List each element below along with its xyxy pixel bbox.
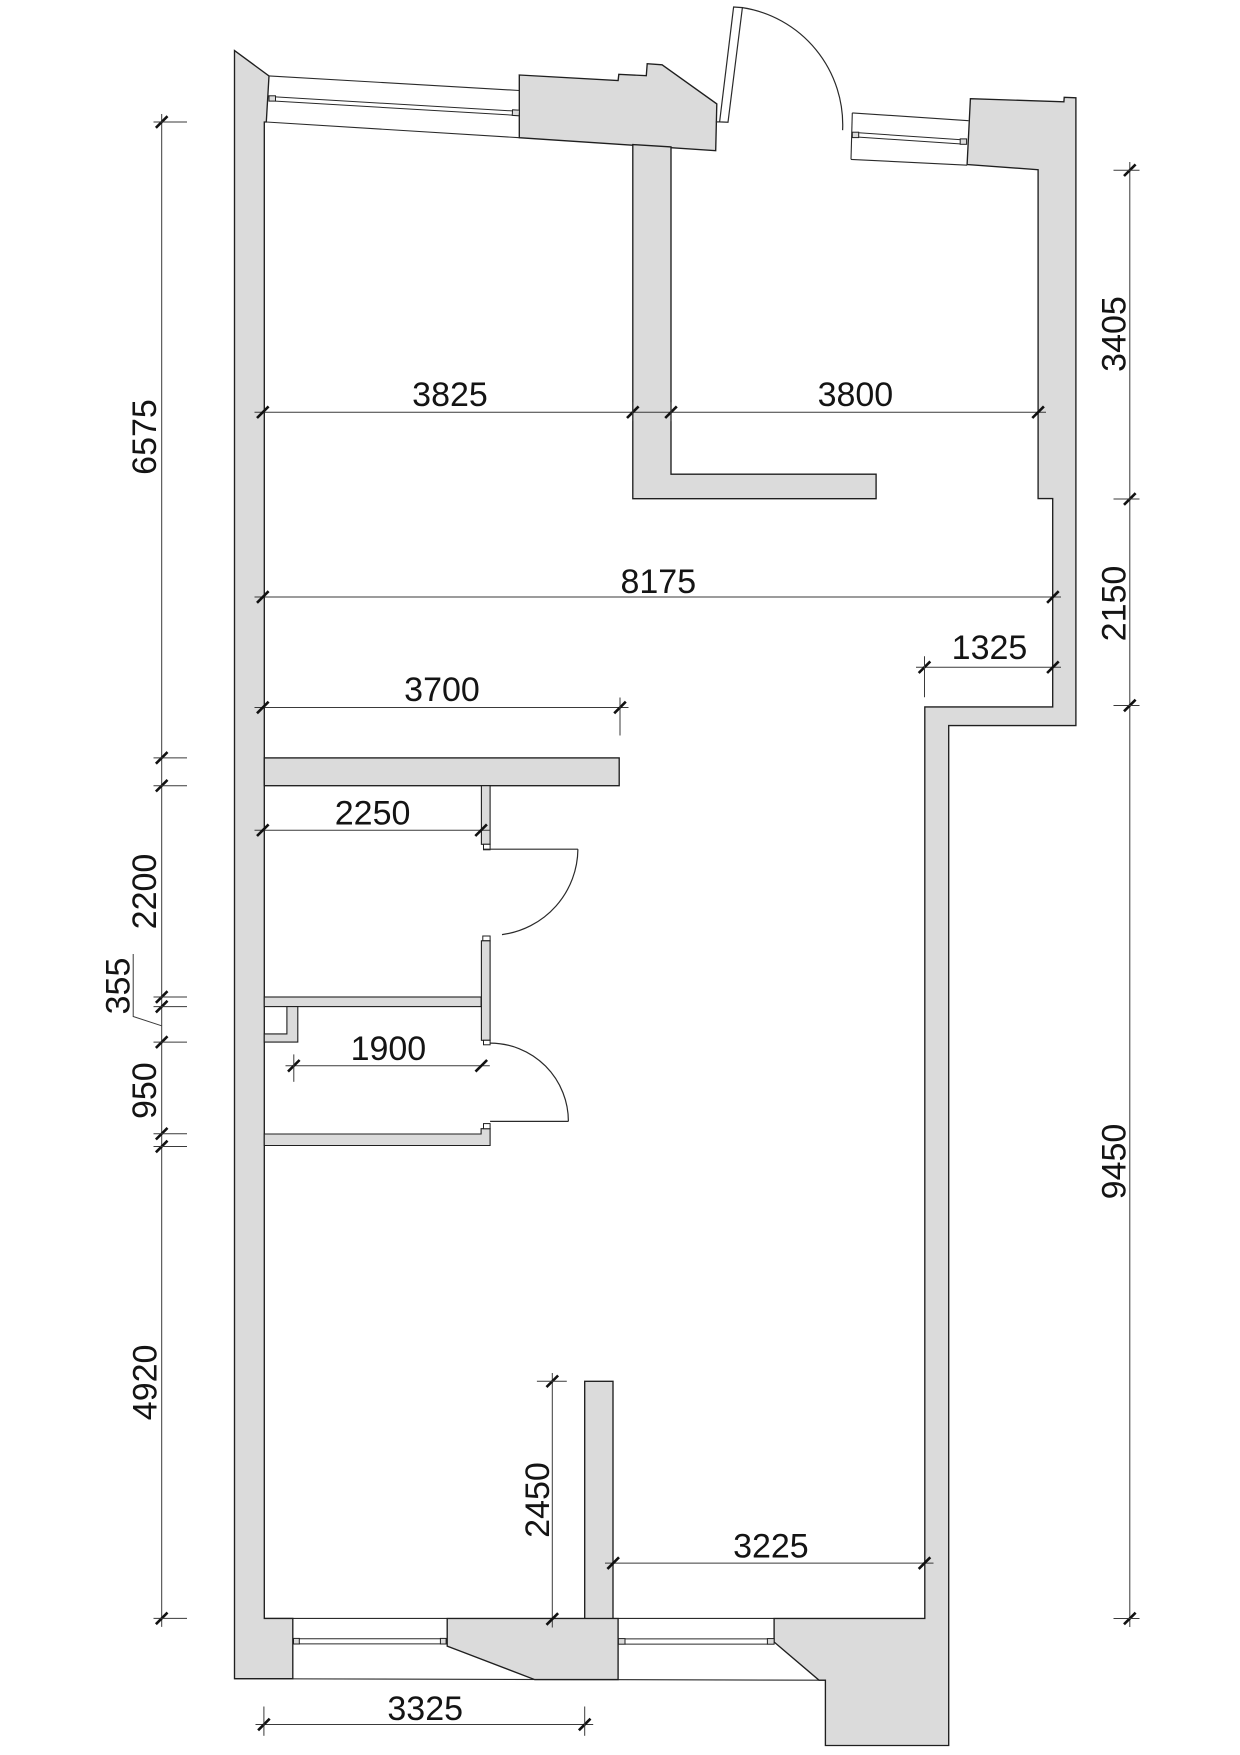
svg-text:3405: 3405 (1096, 296, 1134, 372)
svg-text:4920: 4920 (127, 1345, 165, 1421)
svg-text:3700: 3700 (404, 671, 480, 709)
svg-text:1325: 1325 (952, 629, 1028, 667)
svg-text:2150: 2150 (1096, 566, 1134, 642)
svg-text:2200: 2200 (126, 854, 164, 930)
svg-text:3800: 3800 (818, 376, 894, 414)
svg-text:6575: 6575 (126, 399, 164, 475)
svg-text:355: 355 (100, 958, 138, 1015)
svg-text:950: 950 (126, 1062, 164, 1119)
svg-text:1900: 1900 (351, 1030, 427, 1068)
svg-text:8175: 8175 (620, 563, 696, 601)
svg-text:3225: 3225 (733, 1528, 809, 1566)
svg-text:3325: 3325 (387, 1690, 463, 1728)
svg-text:9450: 9450 (1096, 1124, 1134, 1200)
svg-text:3825: 3825 (412, 376, 488, 414)
svg-text:2450: 2450 (519, 1462, 557, 1538)
svg-text:2250: 2250 (335, 795, 411, 833)
